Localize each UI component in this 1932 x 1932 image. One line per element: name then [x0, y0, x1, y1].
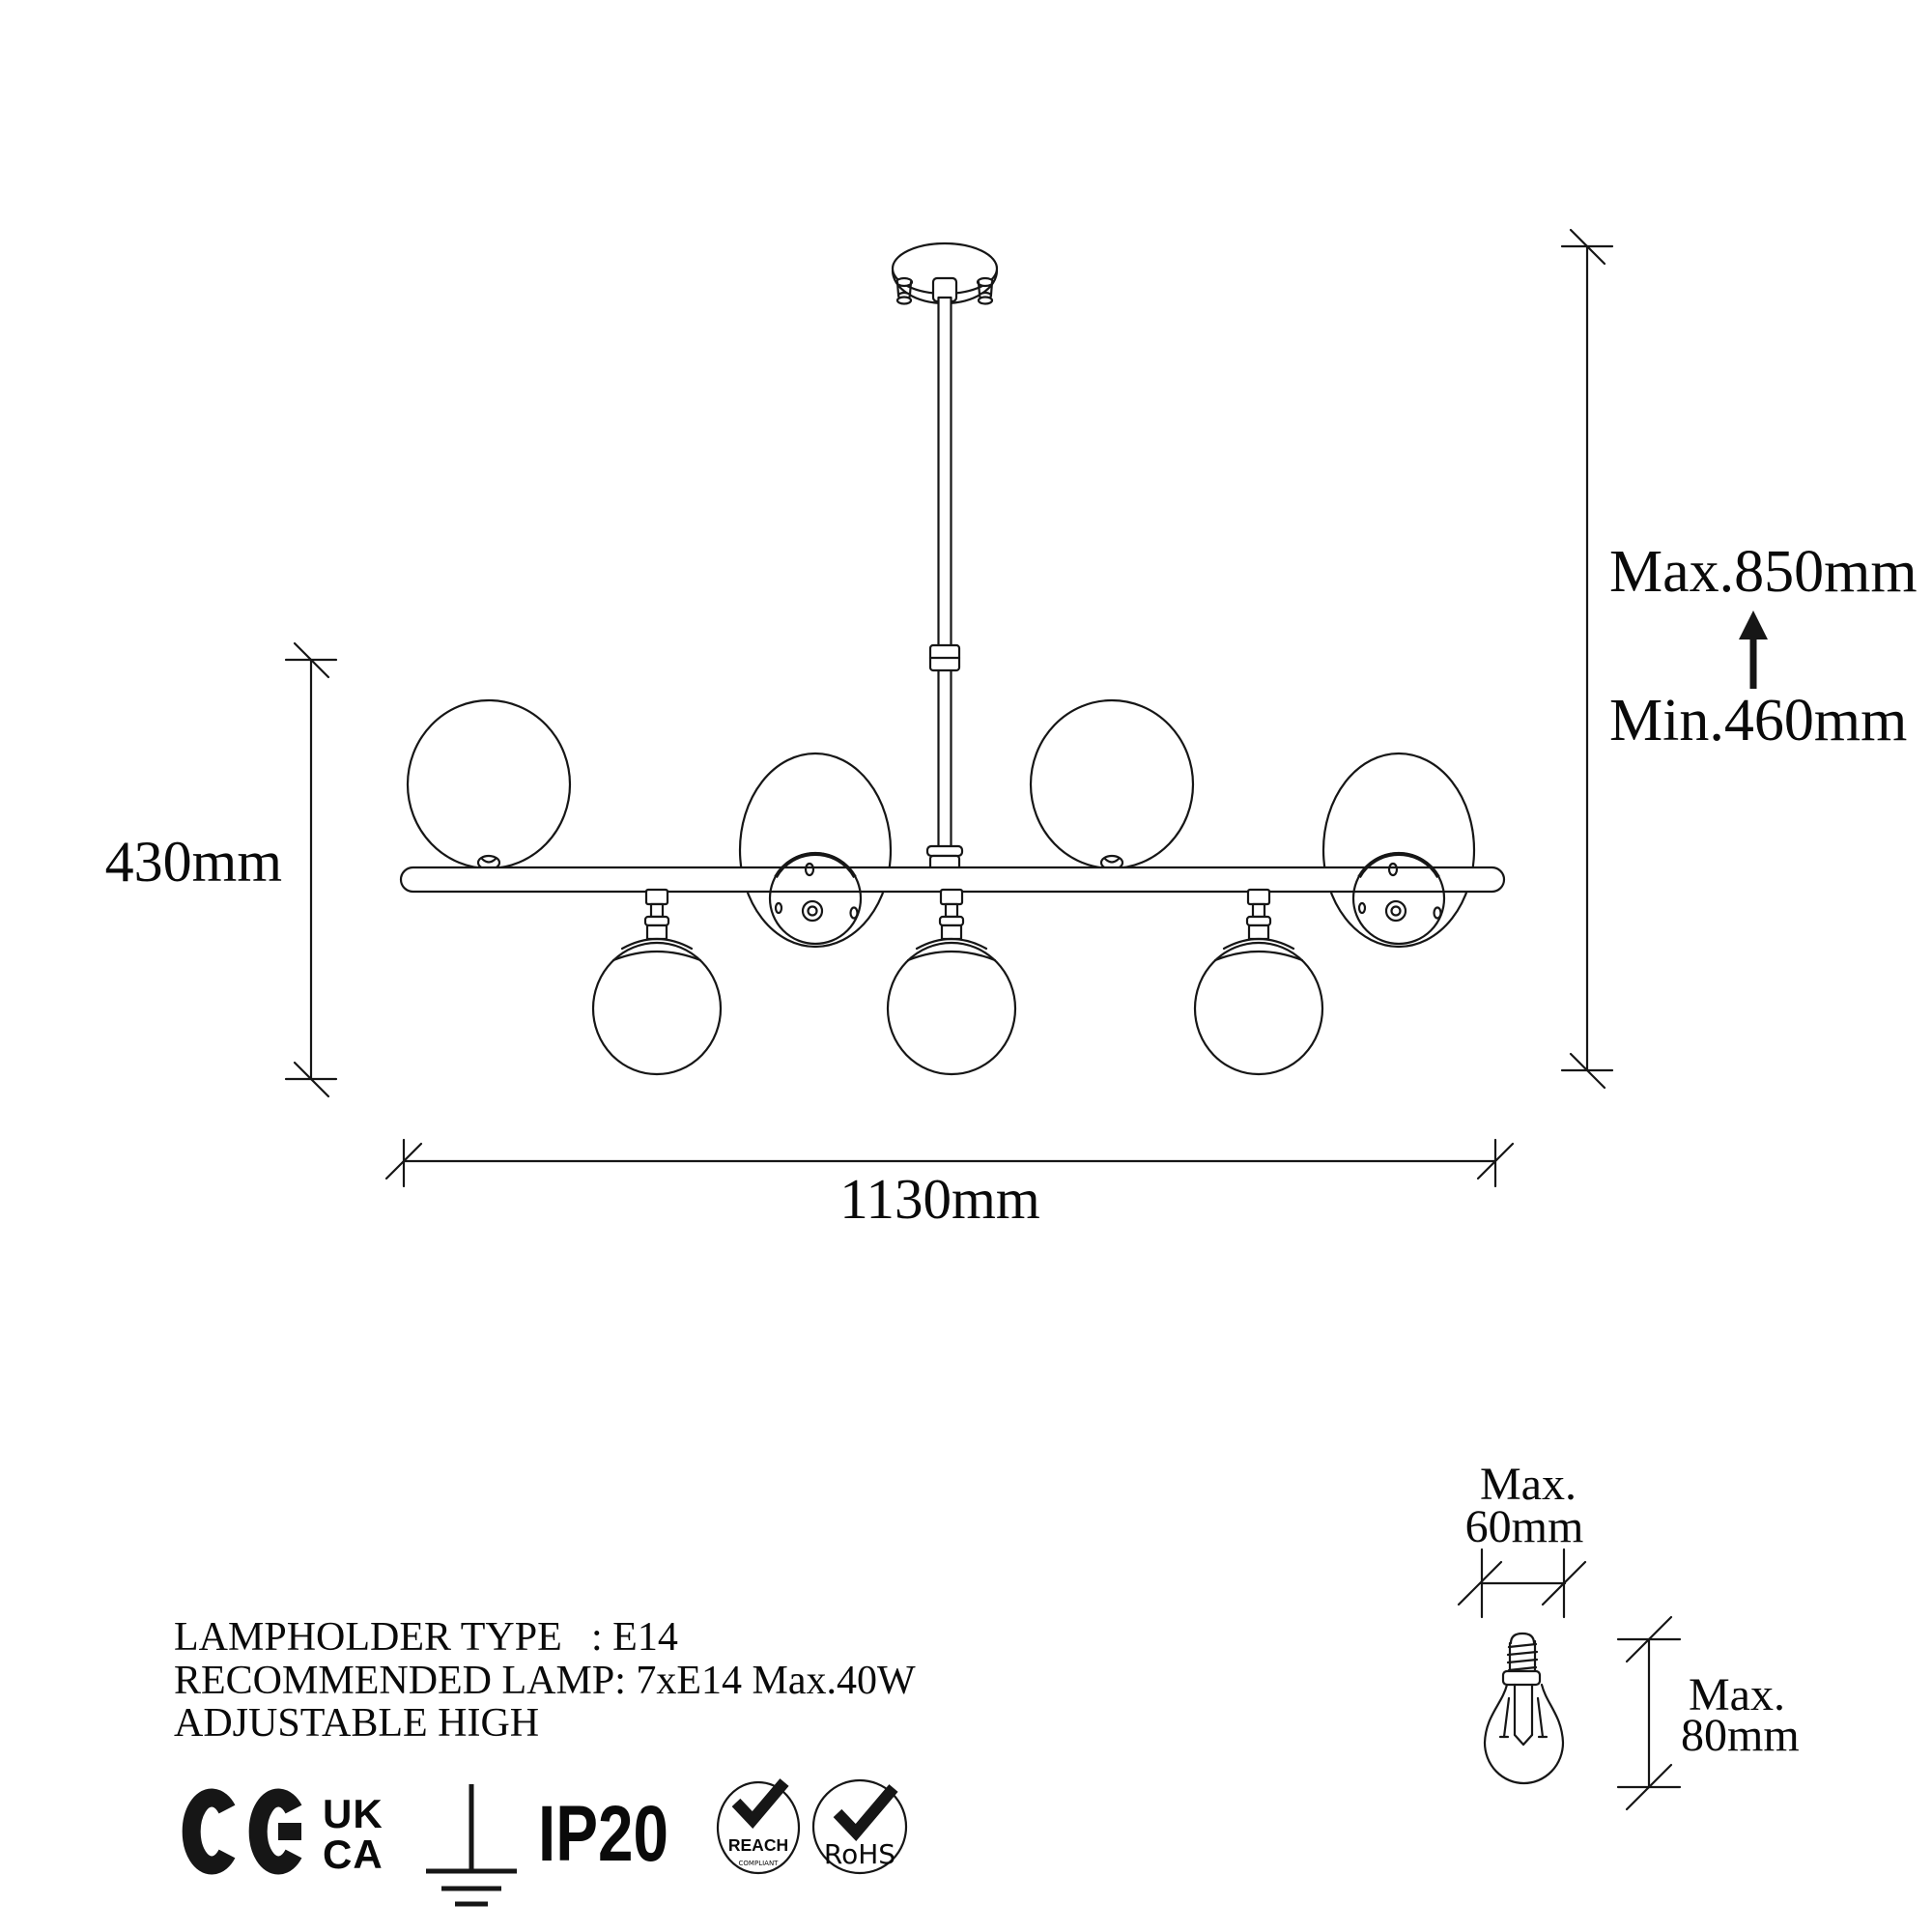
ukca-bottom-text: CA: [323, 1832, 384, 1877]
total-width-label: 1130mm: [839, 1167, 1040, 1231]
dimension-body-height: 430mm: [105, 643, 336, 1096]
lower-globe-3: [1195, 890, 1322, 1074]
checkmark-icon: [838, 1788, 894, 1833]
spec-line3: ADJUSTABLE HIGH: [174, 1701, 539, 1746]
body-height-label: 430mm: [105, 830, 282, 894]
upper-globe-back-2: [1323, 753, 1474, 947]
dimension-hanging-height: Max.850mm Min.460mm: [1562, 230, 1918, 1088]
ip-rating-text: IP20: [538, 1789, 668, 1878]
dimension-total-width: 1130mm: [386, 1140, 1513, 1231]
dimension-bulb-height: [1618, 1617, 1680, 1809]
spec-line1-value: : E14: [591, 1615, 678, 1660]
ceiling-canopy: [893, 243, 997, 304]
bulb-drawing: [1485, 1634, 1563, 1783]
hanging-min-label: Min.460mm: [1609, 688, 1907, 753]
upper-globe-1: [408, 700, 570, 869]
ce-mark-icon: [191, 1798, 301, 1865]
bulb-filament: [1500, 1685, 1547, 1745]
spec-line2: RECOMMENDED LAMP: 7xE14 Max.40W: [174, 1659, 916, 1703]
chandelier-diagram-svg: 430mm Max.850mm Min.460mm 1130mm Max. 60…: [0, 0, 1932, 1932]
lower-globe-1: [593, 890, 721, 1074]
rohs-badge-icon: RoHS: [813, 1780, 906, 1873]
dimension-bulb-diameter: [1459, 1549, 1585, 1617]
lamp-bar: [401, 867, 1504, 892]
spec-line1-label: LAMPHOLDER TYPE: [174, 1615, 562, 1660]
rohs-text: RoHS: [824, 1838, 895, 1870]
hanging-rod: [927, 298, 962, 871]
chandelier-drawing: [401, 243, 1504, 1074]
upper-globe-2: [1031, 700, 1193, 869]
reach-badge-icon: REACH COMPLIANT: [718, 1782, 799, 1873]
bulb-detail: Max. 60mm: [1459, 1459, 1800, 1809]
lower-globe-2: [888, 890, 1015, 1074]
bulb-height-value: 80mm: [1681, 1710, 1800, 1761]
hanging-max-label: Max.850mm: [1609, 539, 1918, 605]
adjustable-arrow-icon: [1739, 611, 1768, 689]
spec-text-block: LAMPHOLDER TYPE : E14 RECOMMENDED LAMP: …: [174, 1615, 916, 1746]
reach-text: REACH: [728, 1835, 788, 1855]
ukca-mark-icon: UK CA: [323, 1791, 384, 1877]
technical-drawing-page: 430mm Max.850mm Min.460mm 1130mm Max. 60…: [0, 0, 1932, 1932]
bulb-diameter-value: 60mm: [1465, 1501, 1584, 1552]
certification-icons: UK CA IP20 REACH COMPLIANT RoHS: [191, 1780, 906, 1904]
ukca-top-text: UK: [323, 1791, 384, 1836]
reach-sub-text: COMPLIANT: [739, 1860, 780, 1867]
checkmark-icon: [736, 1782, 784, 1820]
ground-symbol-icon: [426, 1784, 517, 1904]
upper-globe-back-1: [740, 753, 891, 947]
